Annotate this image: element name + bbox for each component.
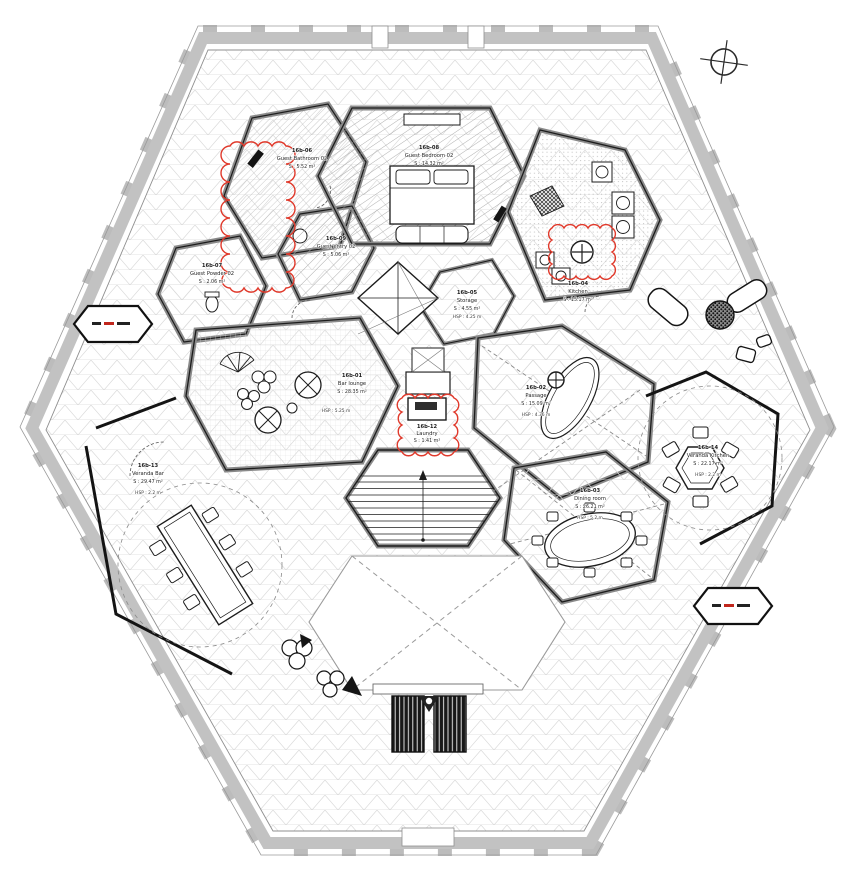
pillow-icon — [434, 170, 468, 184]
stair-run-left — [392, 696, 424, 752]
svg-text:S : 5.52 m²: S : 5.52 m² — [289, 164, 316, 170]
laundry-machine — [415, 402, 437, 410]
svg-text:Guest Bathroom 02: Guest Bathroom 02 — [277, 156, 328, 162]
roof-notch-right — [468, 26, 484, 48]
walkline-start — [421, 538, 425, 542]
svg-text:16b-04: 16b-04 — [568, 281, 589, 287]
pedestal-table — [548, 372, 564, 388]
svg-text:16b-06: 16b-06 — [292, 148, 313, 154]
svg-text:S : 1.41 m²: S : 1.41 m² — [414, 438, 441, 444]
svg-text:Kitchen: Kitchen — [568, 289, 588, 295]
svg-text:Guest entry 02: Guest entry 02 — [317, 244, 356, 250]
svg-text:Veranda Kitchen: Veranda Kitchen — [687, 453, 730, 459]
label-laundry: 16b-12 Laundry S : 1.41 m² — [414, 424, 441, 444]
svg-text:Storage: Storage — [457, 298, 477, 304]
svg-text:S : 28.35 m²: S : 28.35 m² — [337, 389, 367, 395]
svg-text:Guest Bedroom 02: Guest Bedroom 02 — [405, 153, 454, 159]
svg-text:16b-01: 16b-01 — [342, 373, 363, 379]
crest-dot — [426, 698, 432, 704]
svg-text:16b-09: 16b-09 — [326, 236, 347, 242]
console-table — [404, 114, 460, 125]
svg-text:Bar lounge: Bar lounge — [338, 381, 366, 387]
svg-text:HSP : 5.25 m: HSP : 5.25 m — [322, 408, 350, 414]
svg-text:S : 14.32 m²: S : 14.32 m² — [414, 161, 444, 167]
stair-run-right — [434, 696, 466, 752]
hex-marker-right — [694, 588, 772, 624]
svg-text:S : 4.55 m²: S : 4.55 m² — [454, 306, 481, 312]
floor-plan-canvas: 16b-01 Bar lounge S : 28.35 m² HSP : 5.2… — [0, 0, 854, 872]
svg-text:HSP : 2.2 m: HSP : 2.2 m — [695, 472, 721, 478]
svg-text:S : 5.06 m²: S : 5.06 m² — [323, 252, 350, 258]
svg-text:16b-05: 16b-05 — [457, 290, 478, 296]
svg-text:16b-07: 16b-07 — [202, 263, 223, 269]
svg-text:16b-14: 16b-14 — [698, 445, 719, 451]
stair-core — [346, 450, 500, 546]
svg-text:16b-03: 16b-03 — [580, 488, 601, 494]
bed — [390, 166, 474, 224]
svg-text:HSP : 5.2 m: HSP : 5.2 m — [577, 515, 603, 521]
svg-text:16b-02: 16b-02 — [526, 385, 547, 391]
svg-text:16b-13: 16b-13 — [138, 463, 159, 469]
svg-text:HSP : 4.36 m: HSP : 4.36 m — [522, 412, 550, 418]
svg-text:S : 2.06 m²: S : 2.06 m² — [199, 279, 226, 285]
threshold — [373, 684, 483, 694]
roof-notch-left — [372, 26, 388, 48]
round-table — [295, 372, 321, 398]
kitchen-table — [571, 241, 593, 263]
svg-text:S : 26.21 m²: S : 26.21 m² — [575, 504, 605, 510]
toilet-icon — [206, 296, 218, 312]
svg-text:Guest Powder 02: Guest Powder 02 — [190, 271, 234, 277]
cistern-icon — [205, 292, 219, 297]
bottom-gate-notch — [402, 828, 454, 846]
hex-marker-left — [74, 306, 152, 342]
svg-text:HSP : 4.25 m: HSP : 4.25 m — [453, 314, 481, 320]
side-table — [287, 403, 297, 413]
pillow-icon — [396, 170, 430, 184]
svg-text:S : 29.47 m²: S : 29.47 m² — [133, 479, 163, 485]
lift-shaft — [406, 348, 450, 420]
svg-text:HSP : 2.2 m: HSP : 2.2 m — [135, 490, 161, 496]
lower-canopy — [309, 556, 565, 690]
svg-text:S : 22.17 m²: S : 22.17 m² — [693, 461, 723, 467]
svg-text:Dining room: Dining room — [574, 496, 606, 502]
north-indicator — [697, 37, 751, 87]
svg-text:16b-12: 16b-12 — [417, 424, 438, 430]
svg-text:Passage: Passage — [525, 393, 546, 399]
round-table — [255, 407, 281, 433]
svg-text:S : 15.17 m²: S : 15.17 m² — [563, 297, 593, 303]
svg-text:Laundry: Laundry — [416, 431, 437, 437]
fire-pit-icon — [706, 301, 734, 329]
room-guest-bedroom — [318, 108, 524, 244]
sofa — [396, 226, 468, 243]
svg-text:16b-08: 16b-08 — [419, 145, 440, 151]
svg-text:S : 15.09 m²: S : 15.09 m² — [521, 401, 551, 407]
svg-text:Veranda Bar: Veranda Bar — [132, 471, 165, 477]
floor-plan-drawing: 16b-01 Bar lounge S : 28.35 m² HSP : 5.2… — [0, 0, 854, 872]
